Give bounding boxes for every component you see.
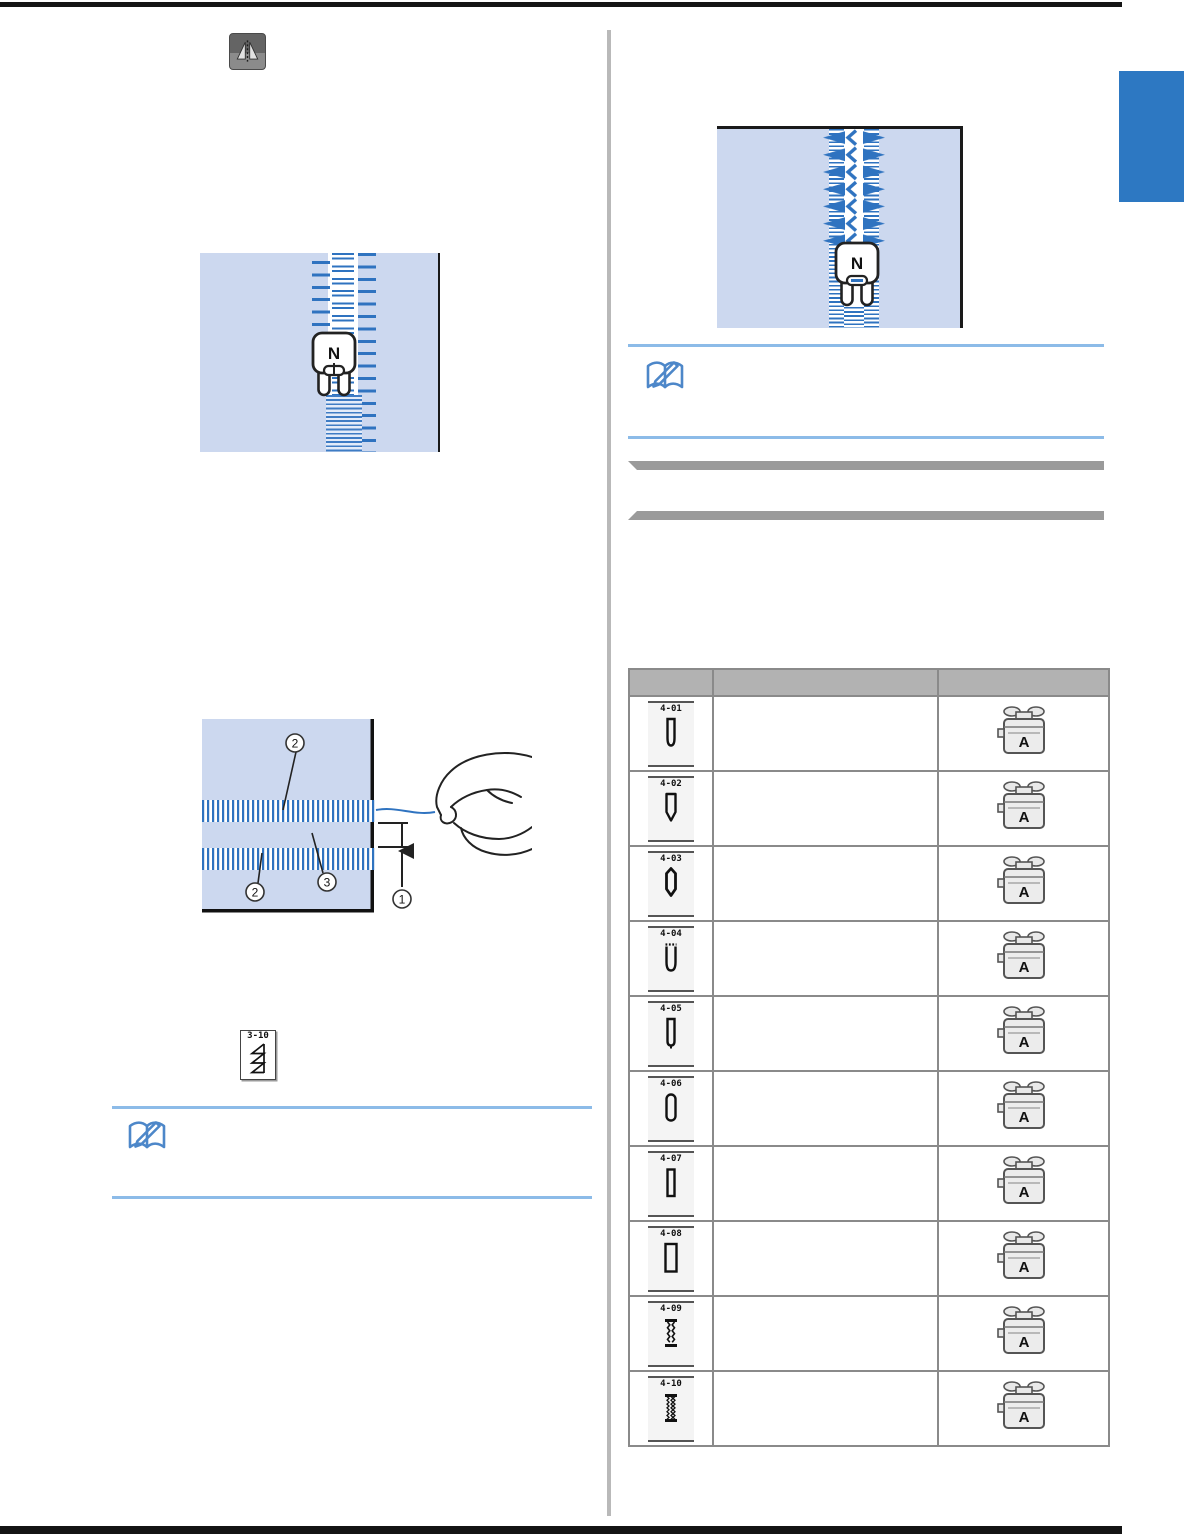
closed-zipper-texture [844,307,864,328]
stitch-label: 4-04 [660,929,682,940]
presser-foot-a-icon: A [996,1380,1052,1432]
mirror-image-icon [232,36,263,67]
description-cell [713,1146,938,1221]
table-row: 4-02 A [629,771,1109,846]
presser-foot-a-icon: A [996,705,1052,757]
presser-foot-a-icon: A [996,1305,1052,1357]
description-cell [713,1071,938,1146]
description-cell [713,771,938,846]
stitch-cell: 4-01 [648,701,694,767]
buttonhole-glyph [659,715,683,751]
stitch-label: 4-08 [660,1229,682,1240]
stitch-label: 4-01 [660,704,682,715]
manual-page: N N [0,0,1190,1534]
note-icon [126,1118,168,1155]
buttonhole-glyph [659,865,683,901]
header-foot [938,669,1109,696]
stitch-label: 4-07 [660,1154,682,1165]
zipper-figure-left: N [200,253,440,452]
foot-letter: A [1018,959,1029,976]
zipper-figure-right: N [717,126,963,328]
foot-letter: A [1018,809,1029,826]
stitch-label: 4-09 [660,1304,682,1315]
presser-foot-a-icon: A [996,1155,1052,1207]
top-rule [0,2,1122,7]
stitch-cell: 4-04 [648,926,694,992]
foot-letter: N [328,344,340,363]
stitch-label: 4-10 [660,1379,682,1390]
section-bar-1 [628,461,1104,470]
foot-letter: A [1018,1184,1029,1201]
buttonhole-glyph [659,1165,683,1201]
table-header-row [629,669,1109,696]
stitch-cell: 4-10 [648,1376,694,1442]
callout-2-bottom: 2 [252,886,259,900]
table-row: 4-04 A [629,921,1109,996]
closed-zipper-texture [326,395,362,452]
buttonhole-glyph [659,1090,683,1126]
stitch-cell: 4-07 [648,1151,694,1217]
buttonhole-glyph [659,1390,683,1426]
header-stitch [629,669,713,696]
stitch-cell: 4-06 [648,1076,694,1142]
stitch-cell: 4-08 [648,1226,694,1292]
foot-letter: A [1018,884,1029,901]
table-row: 4-05 A [629,996,1109,1071]
header-description [713,669,938,696]
description-cell [713,696,938,771]
hem-figure: 2 2 3 1 [202,715,532,915]
thread [376,809,435,813]
stitch-cell: 4-03 [648,851,694,917]
stitch-label: 4-05 [660,1004,682,1015]
description-cell [713,1221,938,1296]
buttonhole-table: 4-01 A 4-02 [628,668,1110,1447]
description-cell [713,996,938,1071]
foot-letter: A [1018,734,1029,751]
presser-foot-a-icon: A [996,1080,1052,1132]
stitch-label: 4-06 [660,1079,682,1090]
callout-1: 1 [399,893,406,907]
description-cell [713,846,938,921]
foot-letter: A [1018,1409,1029,1426]
table-row: 4-07 A [629,1146,1109,1221]
section-bar-2 [628,511,1104,520]
hand-illustration [436,753,532,855]
note-section-right [628,344,1104,439]
stitch-chip-3-10: 3-10 [240,1030,276,1080]
foot-letter: A [1018,1259,1029,1276]
stitch-chip-label: 3-10 [247,1031,269,1042]
foot-letter: A [1018,1334,1029,1351]
presser-foot-a-icon: A [996,855,1052,907]
stitch-cell: 4-02 [648,776,694,842]
overcast-band-top [202,800,376,822]
callout-3: 3 [324,876,331,890]
callout-2-top: 2 [292,737,299,751]
note-icon [644,358,686,395]
table-row: 4-08 A [629,1221,1109,1296]
chapter-tab [1119,71,1184,202]
presser-foot-n: N [834,241,880,309]
presser-foot-a-icon: A [996,780,1052,832]
stitch-ticks-left [312,255,330,335]
presser-foot-a-icon: A [996,930,1052,982]
presser-foot-a-icon: A [996,1005,1052,1057]
table-row: 4-06 A [629,1071,1109,1146]
buttonhole-glyph [659,1015,683,1051]
table-row: 4-03 A [629,846,1109,921]
dimension-bracket [378,823,408,887]
buttonhole-glyph [659,790,683,826]
description-cell [713,921,938,996]
presser-foot-n: N [311,331,357,399]
stitch-cell: 4-09 [648,1301,694,1367]
column-divider [607,30,611,1516]
description-cell [713,1371,938,1446]
table-row: 4-10 A [629,1371,1109,1446]
foot-letter: A [1018,1034,1029,1051]
foot-letter: N [851,254,863,273]
mirror-image-button [229,33,266,70]
stitch-label: 4-03 [660,854,682,865]
overcast-stitch-glyph [248,1042,268,1075]
table-row: 4-09 A [629,1296,1109,1371]
foot-letter: A [1018,1109,1029,1126]
buttonhole-glyph [659,940,683,976]
stitch-cell: 4-05 [648,1001,694,1067]
bottom-rule [0,1526,1122,1534]
buttonhole-glyph [659,1240,683,1276]
presser-foot-a-icon: A [996,1230,1052,1282]
table-row: 4-01 A [629,696,1109,771]
overcast-band-bottom [202,848,376,870]
buttonhole-glyph [659,1315,683,1351]
stitch-label: 4-02 [660,779,682,790]
description-cell [713,1296,938,1371]
note-section-left [112,1106,592,1199]
decorative-stitch [821,129,887,249]
